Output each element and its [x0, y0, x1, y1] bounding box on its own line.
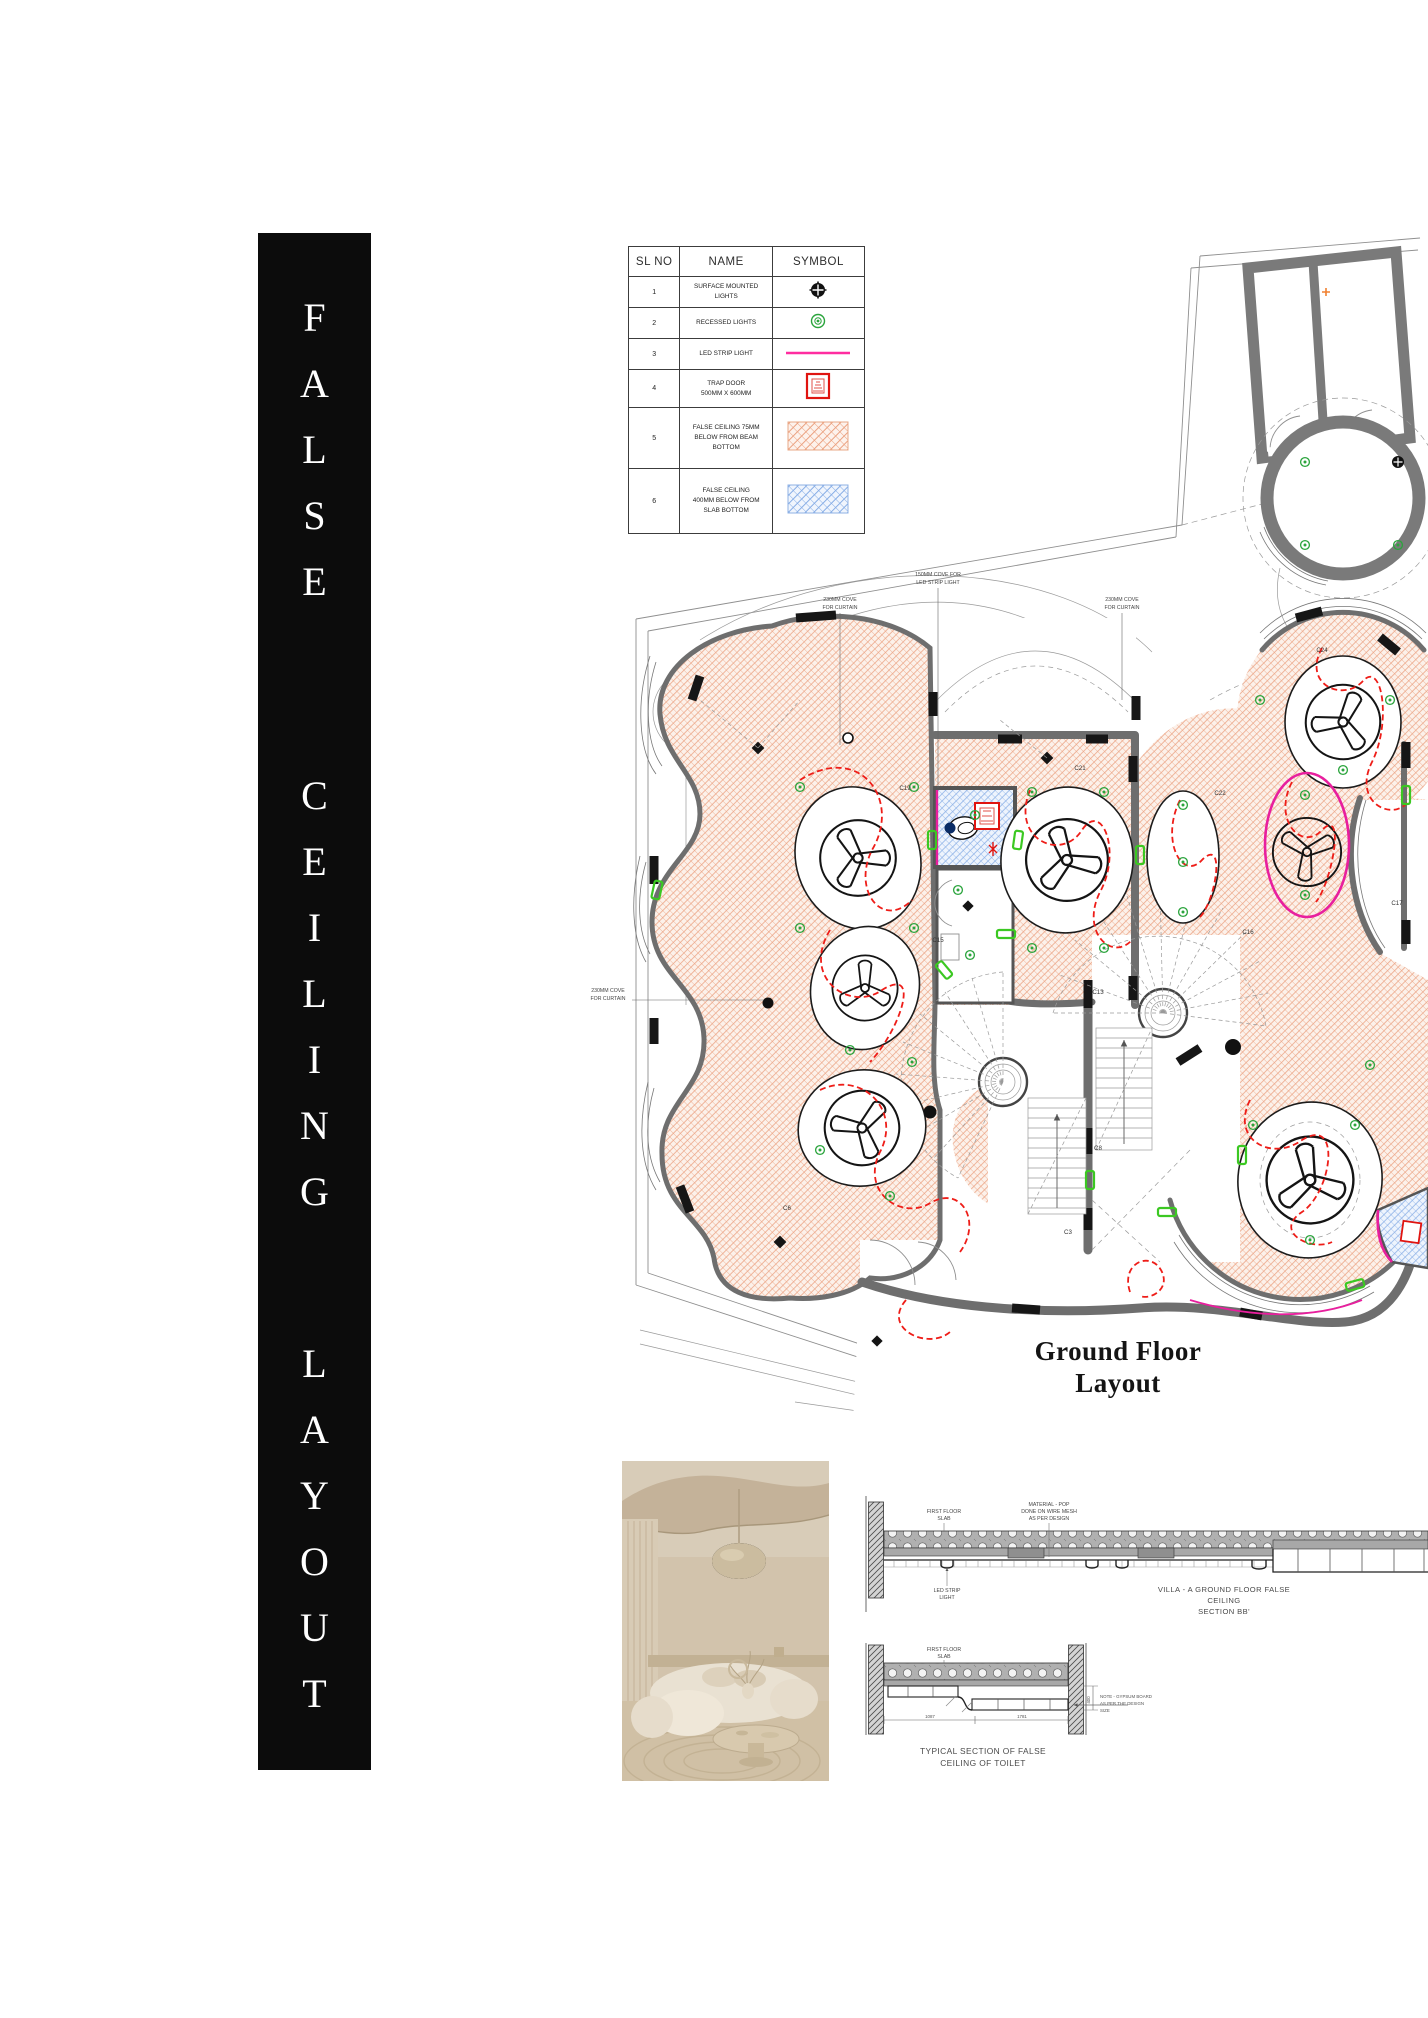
- toilet-note-line1: NOTE - GYPSUM BOARD: [1100, 1694, 1152, 1699]
- cove-curtain-label-3: 230MM COVE: [591, 988, 625, 994]
- svg-text:AS PER THE DESIGN: AS PER THE DESIGN: [1100, 1701, 1144, 1706]
- banner-word-layout: LAYOUT: [291, 1341, 338, 1737]
- bb-material-label: MATERIAL - POP: [1029, 1502, 1070, 1508]
- banner-word-ceiling: CEILING: [291, 773, 338, 1235]
- cove-led-label: 150MM COVE FOR: [915, 572, 961, 578]
- title-banner: FALSE CEILING LAYOUT: [258, 233, 371, 1770]
- stair-flight-left: [1028, 1098, 1086, 1214]
- svg-text:C17: C17: [1391, 900, 1403, 907]
- toilet-title-line2: CEILING OF TOILET: [940, 1758, 1026, 1768]
- svg-text:C16: C16: [1242, 929, 1254, 936]
- toilet-false-ceiling: [888, 1686, 1068, 1710]
- svg-text:SIZE: SIZE: [1100, 1708, 1110, 1713]
- banner-word-false: FALSE: [291, 295, 338, 625]
- svg-text:C21: C21: [1074, 765, 1086, 772]
- cove-curtain-label-1: 230MM COVE: [823, 597, 857, 603]
- svg-text:SLAB: SLAB: [937, 1654, 951, 1660]
- plan-title-line1: Ground Floor: [1035, 1336, 1202, 1366]
- svg-text:C13: C13: [1092, 989, 1104, 996]
- svg-text:SLAB: SLAB: [937, 1516, 951, 1522]
- toilet-dim-1: 1087: [925, 1714, 935, 1719]
- stair-flight-right: [1096, 1028, 1152, 1150]
- toilet-slab-label: FIRST FLOOR: [927, 1647, 961, 1653]
- plan-title-line2: Layout: [1075, 1368, 1161, 1398]
- svg-text:DONE ON WIRE MESH: DONE ON WIRE MESH: [1021, 1509, 1077, 1515]
- section-toilet: 1087 1781 400 NOTE - GYPSUM BOARD AS PER…: [866, 1643, 1152, 1768]
- svg-text:LIGHT: LIGHT: [939, 1595, 955, 1601]
- wall-hatch: [869, 1502, 884, 1598]
- interior-render: [622, 1461, 829, 1781]
- section-details: FIRST FLOOR SLAB MATERIAL - POP DONE ON …: [860, 1488, 1428, 1788]
- svg-text:FOR CURTAIN: FOR CURTAIN: [1105, 605, 1140, 611]
- decor-box: [774, 1647, 784, 1657]
- bb-title-line3: SECTION BB': [1198, 1607, 1250, 1616]
- bb-slab-label: FIRST FLOOR: [927, 1509, 961, 1515]
- svg-text:C15: C15: [932, 937, 944, 944]
- svg-text:C8: C8: [1094, 1145, 1102, 1152]
- svg-text:AS PER DESIGN: AS PER DESIGN: [1029, 1516, 1070, 1522]
- interior-photo: [622, 1461, 829, 1781]
- cove-curtain-label-2: 230MM COVE: [1105, 597, 1139, 603]
- svg-text:C6: C6: [783, 1205, 791, 1212]
- svg-text:C24: C24: [1316, 647, 1328, 654]
- bb-title-line1: VILLA - A GROUND FLOOR FALSE: [1158, 1585, 1290, 1594]
- ground-floor-plan: 230MM COVE FOR CURTAIN 150MM COVE FOR LE…: [440, 228, 1428, 1484]
- bb-led-label: LED STRIP: [934, 1588, 961, 1594]
- poster-page: FALSE CEILING LAYOUT SL NO NAME SYMBOL 1…: [0, 0, 1428, 2018]
- section-bb: FIRST FLOOR SLAB MATERIAL - POP DONE ON …: [866, 1496, 1428, 1616]
- svg-text:FOR CURTAIN: FOR CURTAIN: [591, 996, 626, 1002]
- toilet-dim-2: 1781: [1017, 1714, 1027, 1719]
- svg-text:C19: C19: [899, 785, 911, 792]
- svg-text:LED STRIP LIGHT: LED STRIP LIGHT: [916, 580, 960, 586]
- toilet-title-line1: TYPICAL SECTION OF FALSE: [920, 1746, 1046, 1756]
- svg-text:C22: C22: [1214, 790, 1226, 797]
- bb-title-line2: CEILING: [1207, 1596, 1240, 1605]
- toilet-dim-3: 400: [1086, 1696, 1091, 1704]
- svg-text:C3: C3: [1064, 1229, 1072, 1236]
- svg-text:FOR CURTAIN: FOR CURTAIN: [823, 605, 858, 611]
